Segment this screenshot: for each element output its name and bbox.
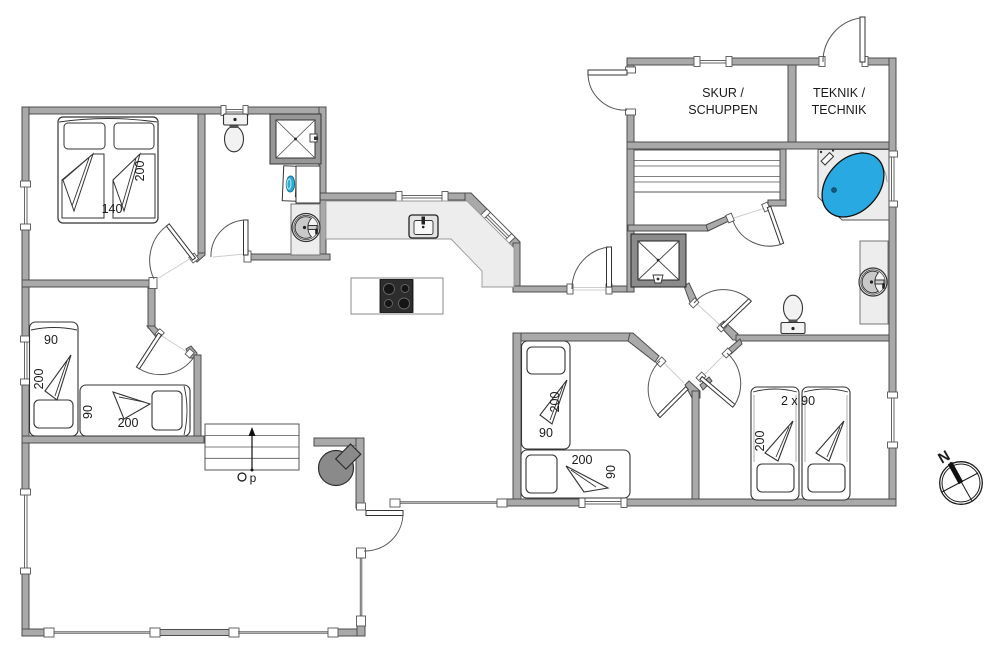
svg-text:TECHNIK: TECHNIK	[812, 103, 868, 117]
svg-text:200: 200	[133, 161, 147, 182]
svg-text:90: 90	[44, 333, 58, 347]
svg-text:200: 200	[118, 416, 139, 430]
svg-text:90: 90	[604, 465, 618, 479]
svg-text:140: 140	[102, 202, 123, 216]
svg-text:2 x 90: 2 x 90	[781, 394, 815, 408]
svg-text:200: 200	[753, 431, 767, 452]
svg-text:TEKNIK /: TEKNIK /	[813, 86, 866, 100]
svg-text:200: 200	[572, 453, 593, 467]
svg-text:200: 200	[32, 369, 46, 390]
svg-text:90: 90	[539, 426, 553, 440]
svg-text:90: 90	[81, 405, 95, 419]
svg-text:200: 200	[548, 392, 562, 413]
svg-text:p: p	[250, 471, 257, 485]
svg-text:SKUR /: SKUR /	[702, 86, 744, 100]
svg-text:SCHUPPEN: SCHUPPEN	[688, 103, 757, 117]
